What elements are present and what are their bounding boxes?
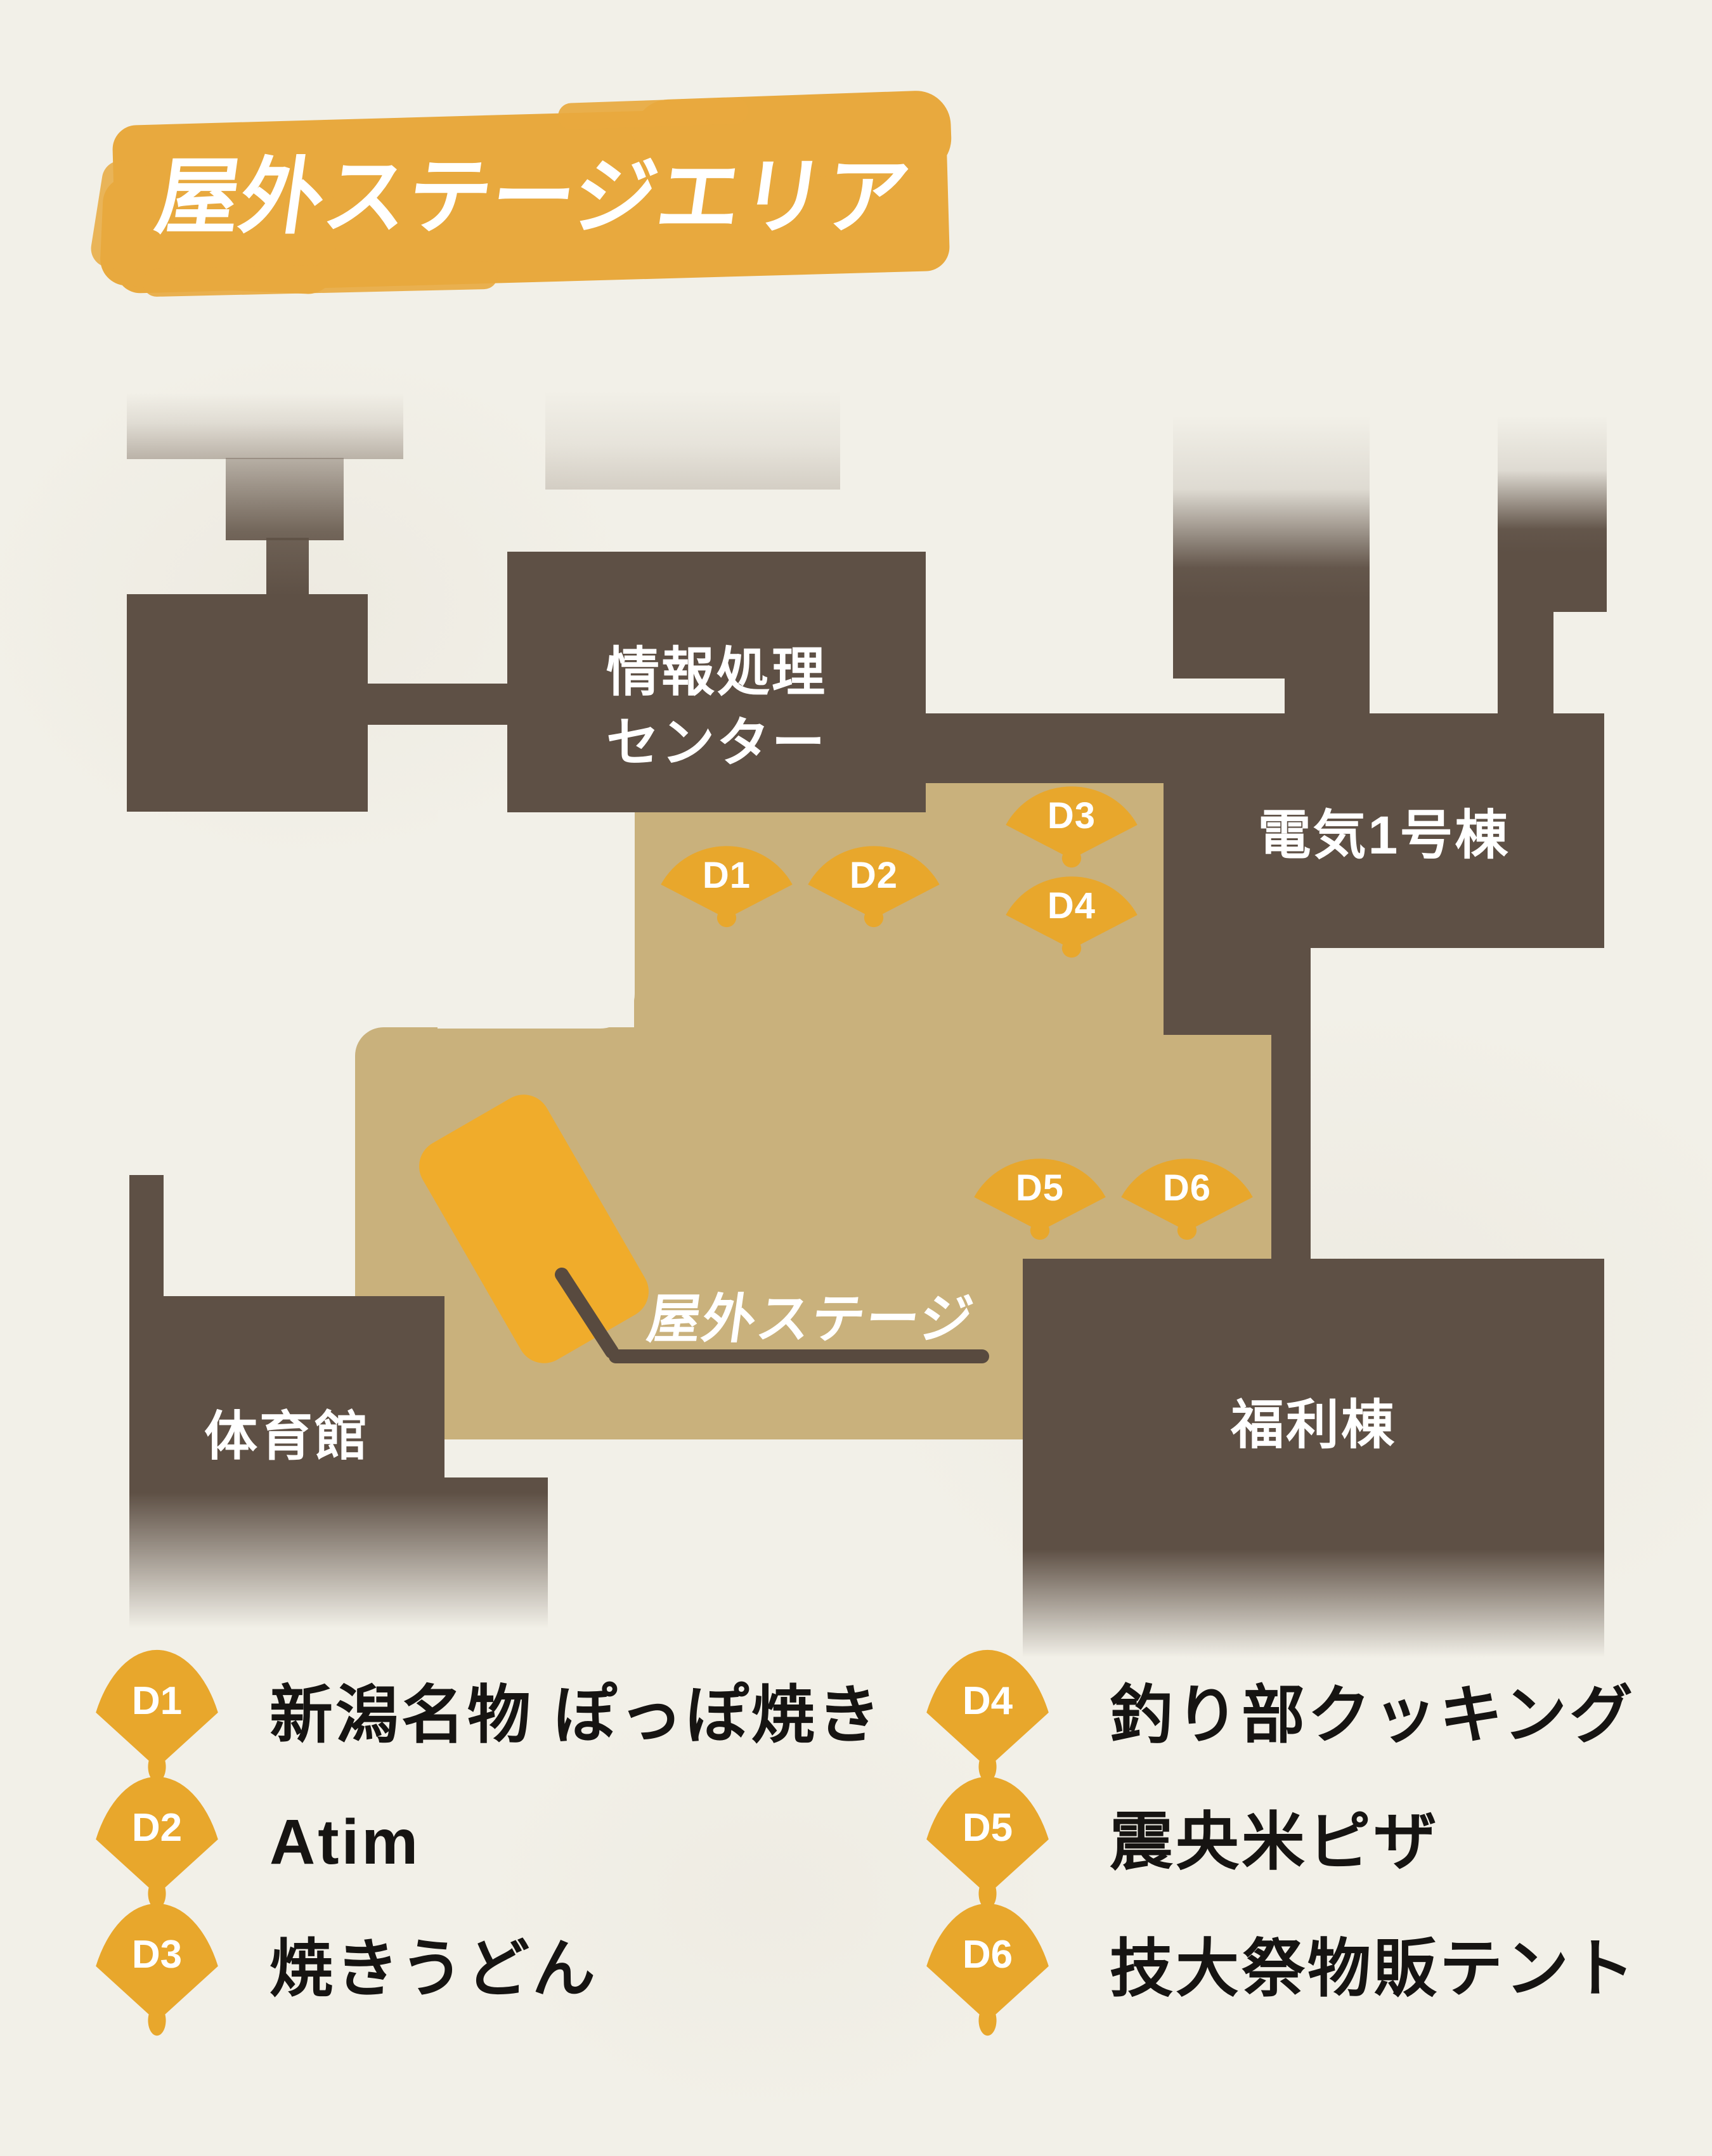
- booth-marker-label: D2: [807, 854, 940, 897]
- legend-booth-id: D6: [926, 1932, 1049, 1977]
- building-gym-foot: [444, 1477, 548, 1657]
- stage-label: 屋外ステージ: [628, 1276, 994, 1353]
- building-label-denki1: 電気1号棟: [1164, 800, 1604, 871]
- legend-booth-name: 釣り部クッキング: [1110, 1684, 1635, 1747]
- festival-map-poster: 屋外ステージエリア 情報処理 センター 電気1号棟 体育館: [0, 0, 1712, 2156]
- building-label-info-center: 情報処理 センター: [507, 637, 926, 778]
- building-fukuri-body: [1023, 1259, 1604, 1674]
- legend-fan-icon: D6: [926, 1899, 1049, 2039]
- booth-marker-label: D3: [1005, 795, 1138, 837]
- road-fade-northwest-stem: [226, 458, 344, 540]
- road-fade-northeast-2: [1498, 415, 1607, 612]
- booth-marker-d6: D6: [1120, 1156, 1254, 1242]
- connector-west: [366, 684, 509, 725]
- booth-marker-d3: D3: [1005, 784, 1138, 869]
- booth-marker-label: D5: [973, 1167, 1106, 1209]
- building-label-fukuri: 福利棟: [1023, 1390, 1604, 1460]
- legend-booth-id: D3: [95, 1932, 219, 1977]
- building-denki1-annex: [1164, 948, 1273, 1035]
- page-title: 屋外ステージエリア: [127, 134, 938, 260]
- legend-booth-name: 震央米ピザ: [1110, 1810, 1439, 1874]
- building-fukuri: [1023, 1259, 1604, 1674]
- legend-booth-id: D2: [95, 1805, 219, 1850]
- legend-booth-name: Atim: [269, 1810, 420, 1874]
- legend-fan-icon: D3: [95, 1899, 219, 2039]
- legend-fan-icon: D5: [926, 1772, 1049, 1912]
- road-fade-northwest: [127, 393, 403, 459]
- building-gym-main: [129, 1296, 444, 1657]
- legend-booth-id: D4: [926, 1679, 1049, 1724]
- plaza-paper-notch: [438, 810, 635, 1029]
- booth-marker-d5: D5: [973, 1156, 1106, 1242]
- booth-marker-d1: D1: [660, 843, 793, 929]
- legend-booth-id: D5: [926, 1805, 1049, 1850]
- building-label-gym: 体育館: [129, 1401, 444, 1472]
- legend-fan-icon: D1: [95, 1646, 219, 1785]
- road-fade-northeast-1: [1173, 415, 1370, 679]
- legend-fan-icon: D4: [926, 1646, 1049, 1785]
- legend-booth-name: 焼きうどん: [269, 1937, 598, 2001]
- road-fade-northwest-neck: [266, 538, 309, 596]
- road-fade-northeast-2-stem: [1498, 609, 1553, 715]
- legend-booth-name: 新潟名物 ぽっぽ焼き: [269, 1684, 883, 1747]
- legend-booth-id: D1: [95, 1679, 219, 1724]
- road-fade-north: [545, 390, 840, 490]
- connector-east: [926, 713, 1164, 783]
- building-small-west: [127, 594, 368, 812]
- legend-fan-icon: D2: [95, 1772, 219, 1912]
- corridor-denki-fukuri: [1271, 948, 1311, 1260]
- legend-booth-name: 技大祭物販テント: [1110, 1937, 1637, 2001]
- booth-marker-d2: D2: [807, 843, 940, 929]
- booth-marker-label: D1: [660, 854, 793, 897]
- booth-marker-label: D4: [1005, 885, 1138, 927]
- booth-marker-d4: D4: [1005, 874, 1138, 959]
- booth-marker-label: D6: [1120, 1167, 1254, 1209]
- road-fade-northeast-1-stem: [1285, 675, 1370, 716]
